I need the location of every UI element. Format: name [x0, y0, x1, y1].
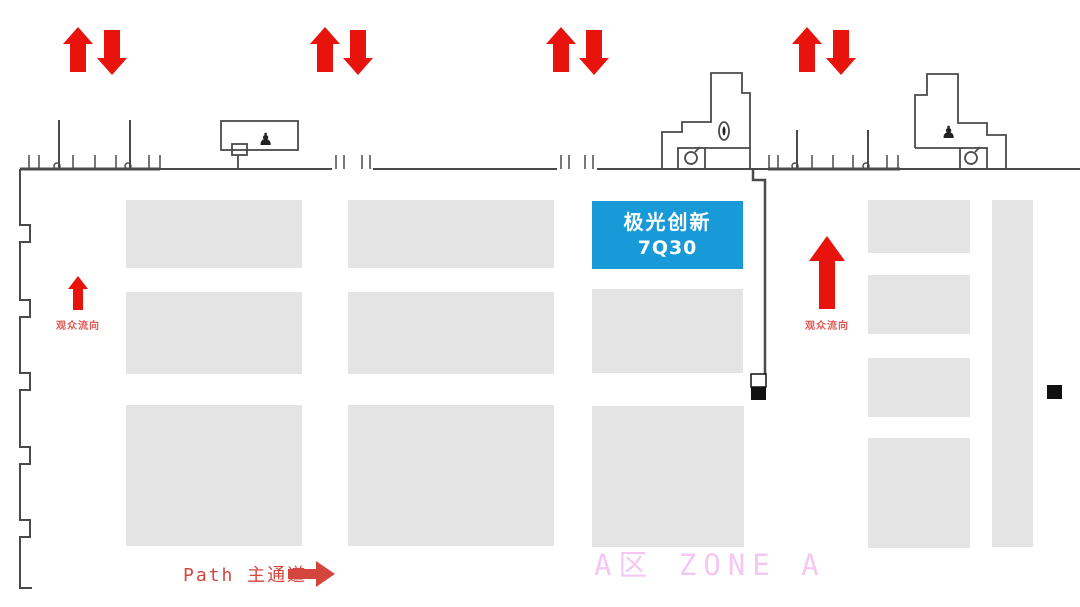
booth-block	[126, 292, 302, 374]
structure-middle	[662, 73, 750, 169]
exhibition-floor-plan: ♟ ♟	[0, 0, 1080, 607]
left-fence-ticks	[29, 120, 160, 169]
highlighted-booth: 极光创新 7Q30	[592, 201, 743, 269]
up-down-arrow-pair-icon	[792, 27, 856, 75]
flow-label-left: 观众流向	[48, 317, 108, 332]
booth-block	[868, 275, 970, 334]
booth-block	[868, 438, 970, 548]
up-down-arrow-pair-icon	[63, 27, 127, 75]
door-ticks	[336, 155, 593, 169]
left-wall	[20, 169, 32, 588]
main-path-label: Path 主通道	[183, 561, 307, 587]
lamp-icon: ♟	[258, 130, 273, 150]
booth-block	[126, 405, 302, 546]
booth-number: 7Q30	[592, 236, 743, 262]
lamp-icon: ♟	[941, 123, 956, 143]
pillar-black-square	[751, 387, 766, 400]
booth-block	[592, 289, 743, 373]
up-down-arrow-pair-icon	[310, 27, 373, 75]
booth-block	[348, 405, 554, 546]
right-fence-ticks	[768, 130, 900, 169]
booth-block	[868, 200, 970, 253]
flow-label-right: 观众流向	[797, 317, 857, 332]
up-down-arrow-pair-icon	[546, 27, 609, 75]
booth-block	[348, 292, 554, 374]
passage-wall	[753, 169, 765, 374]
booth-block	[348, 200, 554, 268]
structure-right	[915, 74, 1006, 169]
pillar-black-square	[1047, 385, 1062, 399]
booth-block	[126, 200, 302, 268]
booth-name: 极光创新	[592, 209, 743, 236]
top-direction-arrows	[63, 27, 856, 75]
up-arrow-icon	[68, 276, 88, 310]
up-arrow-icon	[809, 236, 845, 309]
booth-block	[592, 406, 744, 547]
door-marker	[751, 374, 766, 387]
booth-block	[992, 200, 1033, 547]
booth-block	[868, 358, 970, 417]
zone-a-label: A区 ZONE A	[594, 542, 826, 584]
